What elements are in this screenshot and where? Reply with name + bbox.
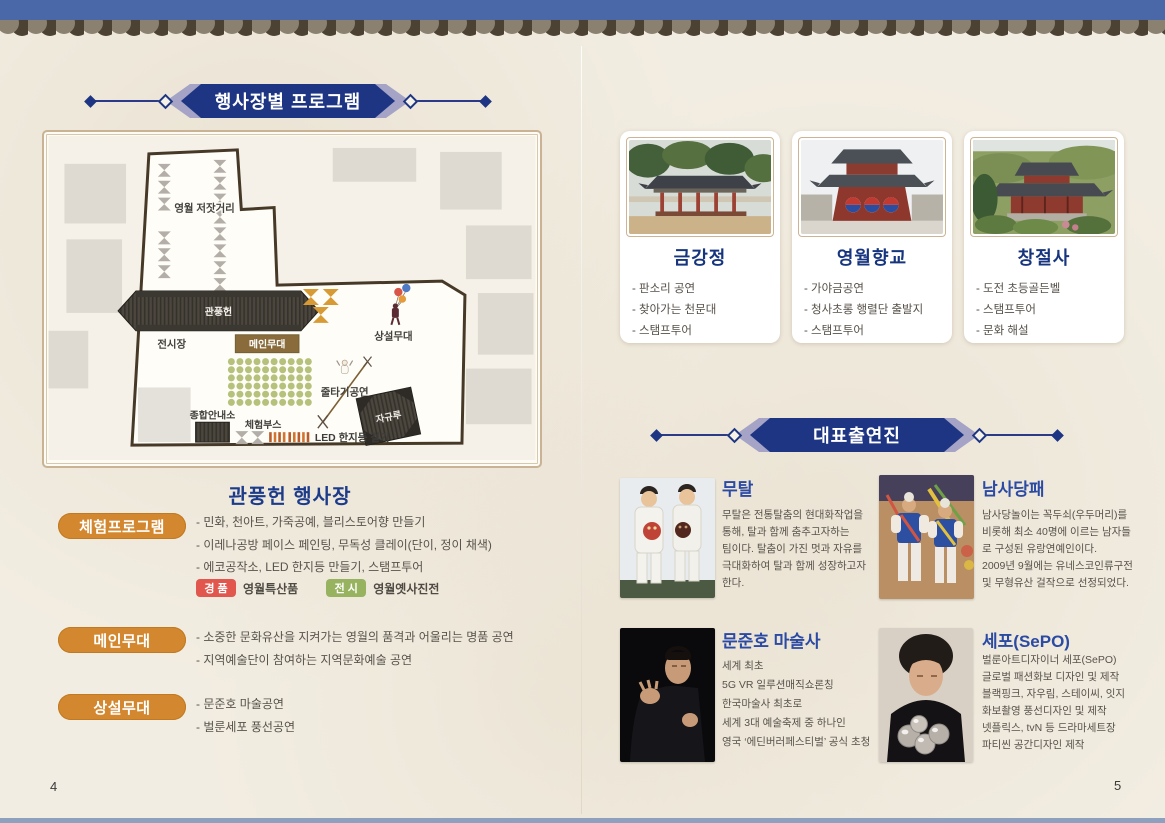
main-stage-label: 메인무대 [249,338,286,351]
list-item: - 스탬프투어 [804,321,952,342]
tightrope-label: 줄타기공연 [321,385,369,398]
bottom-edge-strip [0,818,1165,823]
page-number-left: 4 [50,779,57,794]
performer-desc: 세계 최초 5G VR 일루션매직쇼론칭 한국마술사 최초로 세계 3대 예술축… [722,657,892,752]
perm-stage-items: - 문준호 마술공연 - 벌룬세포 풍선공연 [196,693,295,738]
prize-value: 영월특산품 [243,580,298,597]
left-banner-title: 행사장별 프로그램 [181,84,395,118]
list-item: - 스탬프투어 [976,300,1124,321]
performer-name: 문준호 마술사 [722,627,821,652]
page-fold-divider [581,46,582,814]
open-diamond-icon [972,427,988,443]
changjeolsa-photo [973,140,1115,234]
banner-line [416,100,481,102]
venue-map-card: 영월 저잣거리 관풍헌 전시장 메인무대 [42,130,542,468]
open-diamond-icon [403,93,419,109]
performer-name: 남사당패 [982,475,1045,500]
gwanpungheon-label: 관풍헌 [205,305,232,318]
list-item: - 찾아가는 천문대 [632,300,780,321]
diamond-icon [1051,429,1064,442]
list-item: - 스탬프투어 [632,321,780,342]
list-item: - 이레나공방 페이스 페인팅, 무독성 클레이(단이, 정이 채색) [196,534,492,557]
banner-line [95,100,160,102]
venue-map: 영월 저잣거리 관풍헌 전시장 메인무대 [48,136,536,460]
banner-line [985,434,1053,436]
performer-desc: 무탈은 전통탈춤의 현대화작업을 통해, 탈과 함께 춤추고자하는 팀이다. 탈… [722,507,892,592]
led-lantern-icons [269,432,309,442]
exhibit-value: 영월옛사진전 [373,580,439,597]
list-item: - 지역예술단이 참여하는 지역문화예술 공연 [196,649,514,672]
geumgangjeong-photo [629,140,771,234]
list-item: - 민화, 천아트, 가죽공예, 블리스토어향 만들기 [196,511,492,534]
list-item: - 판소리 공연 [632,279,780,300]
venue-photo-frame [970,137,1118,237]
performer-name: 무탈 [722,475,753,500]
list-item: - 문화 해설 [976,321,1124,342]
prize-row: 경품 영월특산품 전시 영월옛사진전 [196,579,439,597]
namsadang-photo [879,475,974,599]
banner-ribbon: 행사장별 프로그램 [166,84,410,118]
list-item: - 소중한 문화유산을 지켜가는 영월의 품격과 어울리는 명품 공연 [196,626,514,649]
sepo-photo [879,628,973,762]
open-diamond-icon [727,427,743,443]
info-center-label: 종합안내소 [190,408,236,421]
performer-desc: 남사당놀이는 꼭두쇠(우두머리)를 비롯해 최소 40명에 이르는 남자들 로 … [982,507,1152,592]
list-item: - 청사초롱 행렬단 출발지 [804,300,952,321]
list-item: - 문준호 마술공연 [196,693,295,716]
venue-name: 금강정 [620,244,780,270]
main-stage-marker: 메인무대 [235,335,299,353]
left-banner: 행사장별 프로그램 [86,83,490,119]
prize-badge: 경품 [196,579,236,597]
perm-stage-label: 상설무대 [374,330,412,343]
exhibit-badge: 전시 [326,579,366,597]
open-diamond-icon [158,93,174,109]
venue-name: 영월향교 [792,244,952,270]
experience-booth-label: 체험부스 [245,418,282,431]
venue-card-geumgangjeong: 금강정 - 판소리 공연 - 찾아가는 천문대 - 스탬프투어 [620,131,780,343]
venue-photo-frame [626,137,774,237]
right-banner: 대표출연진 [652,417,1062,453]
main-stage-items: - 소중한 문화유산을 지켜가는 영월의 품격과 어울리는 명품 공연 - 지역… [196,626,514,671]
venue-title: 관풍헌 행사장 [42,480,538,509]
moonjunho-photo [620,628,715,762]
page-number-right: 5 [1114,778,1121,793]
right-banner-title: 대표출연진 [750,418,964,452]
performer-name: 세포(SePO) [982,627,1070,652]
roof-border [0,0,1165,44]
venue-items: - 가야금공연 - 청사초롱 행렬단 출발지 - 스탬프투어 [804,279,952,342]
list-item: - 벌룬세포 풍선공연 [196,716,295,739]
diamond-icon [650,429,663,442]
hyanggyo-photo [801,140,943,234]
market-street-label: 영월 저잣거리 [174,202,234,215]
banner-ribbon: 대표출연진 [735,418,979,452]
inner-block [138,387,191,442]
venue-photo-frame [798,137,946,237]
venue-items: - 판소리 공연 - 찾아가는 천문대 - 스탬프투어 [632,279,780,342]
performer-desc: 벌룬아트디자이너 세포(SePO) 글로벌 패션화보 디자인 및 제작 블랙핑크… [982,652,1152,754]
roof-tiles-icon [0,0,1165,44]
venue-name: 창절사 [964,244,1124,270]
diamond-icon [479,95,492,108]
info-center-building [196,422,230,442]
section-badge-perm-stage: 상설무대 [58,694,186,720]
section-badge-main-stage: 메인무대 [58,627,186,653]
list-item: - 가야금공연 [804,279,952,300]
exhibition-label: 전시장 [157,338,186,351]
list-item: - 도전 초등골든벨 [976,279,1124,300]
mutal-photo [620,478,715,598]
gwanpungheon-building: 관풍헌 [118,291,319,331]
banner-line [661,434,729,436]
experience-items: - 민화, 천아트, 가죽공예, 블리스토어향 만들기 - 이레나공방 페이스 … [196,511,492,579]
list-item: - 에코공작소, LED 한지등 만들기, 스탬프투어 [196,556,492,579]
venue-card-hyanggyo: 영월향교 - 가야금공연 - 청사초롱 행렬단 출발지 - 스탬프투어 [792,131,952,343]
venue-items: - 도전 초등골든벨 - 스탬프투어 - 문화 해설 [976,279,1124,342]
venue-card-changjeolsa: 창절사 - 도전 초등골든벨 - 스탬프투어 - 문화 해설 [964,131,1124,343]
section-badge-experience: 체험프로그램 [58,513,186,539]
led-lantern-label: LED 한지등 걸기 [315,431,390,444]
diamond-icon [84,95,97,108]
